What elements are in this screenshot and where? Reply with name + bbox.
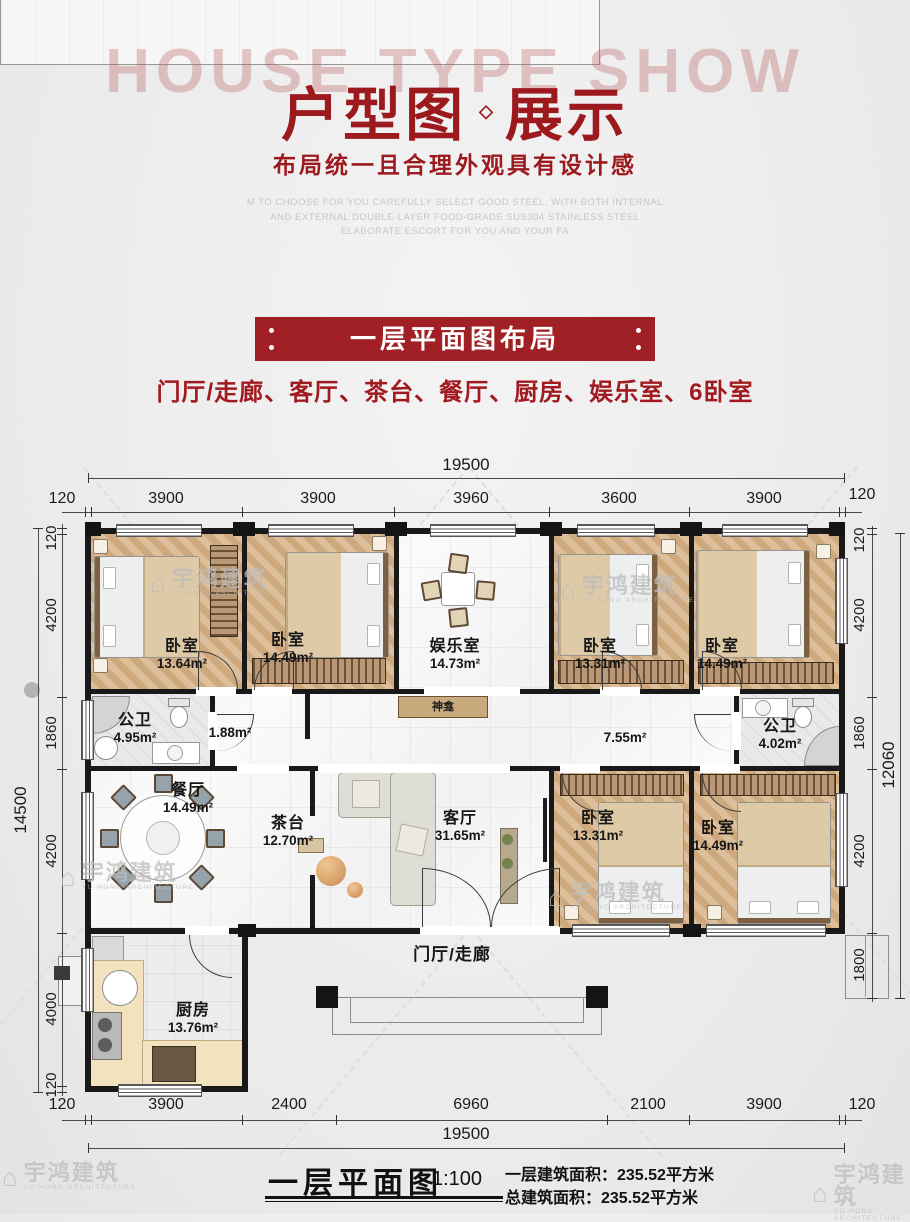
dim-tick — [839, 507, 840, 517]
dim-tick — [91, 507, 92, 517]
dim-tick — [845, 1115, 846, 1125]
game-table-icon — [441, 572, 475, 606]
window — [81, 792, 94, 880]
room-area: 1.88m² — [195, 725, 265, 741]
dim-tick — [844, 1143, 845, 1153]
room-name: 娱乐室 — [400, 638, 510, 656]
nightstand-icon — [816, 544, 831, 559]
room-area: 13.31m² — [550, 656, 650, 672]
plant-icon — [502, 858, 513, 869]
pillow — [367, 563, 380, 585]
room-label: 公卫 4.95m² — [90, 712, 180, 746]
title-part1: 户型图 — [281, 83, 467, 148]
window — [268, 524, 354, 537]
window — [577, 524, 655, 537]
nightstand-icon — [707, 905, 722, 920]
room-name: 公卫 — [735, 718, 825, 736]
dim-label: 1860 — [851, 703, 865, 763]
dim-tick — [867, 998, 877, 999]
dim-tick — [33, 528, 43, 529]
chair-icon — [154, 884, 173, 903]
dim-label: 120 — [22, 1096, 102, 1114]
room-label: 卧室 13.64m² — [132, 638, 232, 672]
room-name: 卧室 — [550, 638, 650, 656]
window — [706, 924, 826, 937]
room-label: 客厅 31.65m² — [405, 810, 515, 844]
desc-line3: ELABORATE ESCORT FOR YOU AND YOUR FA — [0, 225, 910, 240]
dim-label: 120 — [43, 508, 57, 568]
pillow — [367, 625, 380, 647]
wall-pier — [683, 924, 701, 937]
watermark-cn: 宇鸿建筑 — [834, 1164, 910, 1208]
dim-tick — [867, 534, 877, 535]
dim-label: 4200 — [851, 821, 865, 881]
entry-steps — [350, 997, 584, 1023]
dim-label: 4200 — [43, 585, 57, 645]
dim-line — [62, 524, 63, 1096]
dim-label: 19500 — [426, 1124, 506, 1144]
room-name: 客厅 — [405, 810, 515, 828]
footer-area-line2: 总建筑面积：235.52平方米 — [505, 1184, 698, 1208]
room-list-line: 门厅/走廊、客厅、茶台、餐厅、厨房、娱乐室、6卧室 — [0, 372, 910, 407]
dim-tick — [85, 507, 86, 517]
section-banner: 一层平面图布局 — [255, 317, 655, 361]
dim-label: 120 — [43, 1055, 57, 1115]
chair-icon — [100, 829, 119, 848]
watermark: ⌂ 宇鸿建筑YU HONG ARCHITECTURE — [2, 1162, 136, 1191]
dim-tick — [867, 769, 877, 770]
room-area: 14.73m² — [400, 656, 510, 672]
dim-line — [38, 528, 39, 1093]
fridge-icon — [92, 936, 124, 962]
appliance-icon — [152, 1046, 196, 1082]
dim-tick — [895, 998, 905, 999]
area-label: 1.88m² — [195, 725, 265, 741]
wall — [305, 694, 310, 739]
dim-tick — [85, 1115, 86, 1125]
room-name: 餐厅 — [138, 782, 238, 800]
pillow — [797, 901, 819, 914]
watermark-en: YU HONG ARCHITECTURE — [24, 1184, 137, 1191]
room-area: 14.49m² — [668, 838, 768, 854]
burner-icon — [98, 1038, 112, 1052]
banner-dot — [269, 328, 274, 333]
page-title: 户型图◇展示 — [0, 68, 910, 152]
door-gap — [560, 764, 600, 773]
dim-line — [900, 533, 901, 998]
dim-label: 4200 — [43, 821, 57, 881]
footer-area-line1: 一层建筑面积：235.52平方米 — [505, 1161, 714, 1185]
room-label: 门厅/走廊 — [372, 946, 532, 964]
watermark-cn: 宇鸿建筑 — [24, 1162, 137, 1184]
room-label: 卧室 13.31m² — [550, 638, 650, 672]
sink-icon — [755, 700, 771, 716]
dim-tick — [242, 1115, 243, 1125]
desc-line2: AND EXTERNAL DOUBLE-LAYER FOOD-GRADE SUS… — [0, 211, 910, 226]
chair-icon — [475, 580, 496, 601]
section-banner-title: 一层平面图布局 — [255, 317, 655, 361]
door-gap — [237, 764, 289, 773]
dim-label: 3900 — [126, 1096, 206, 1114]
pillow — [788, 624, 801, 646]
watermark-en: YU HONG ARCHITECTURE — [834, 1208, 910, 1222]
dim-label: 14500 — [11, 780, 25, 840]
room-name: 卧室 — [238, 632, 338, 650]
headboard — [383, 553, 388, 657]
headboard — [804, 551, 809, 657]
burner-icon — [98, 1018, 112, 1032]
room-area: 14.49m² — [238, 650, 338, 666]
room-name: 卧室 — [132, 638, 232, 656]
kitchen-sink-icon — [102, 970, 138, 1006]
desc-line1: M TO CHOOSE FOR YOU CAREFULLY SELECT GOO… — [0, 196, 910, 211]
dim-label: 1860 — [43, 703, 57, 763]
chair-icon — [448, 553, 469, 574]
chair-icon — [448, 607, 469, 628]
wall-pier — [680, 522, 702, 536]
room-area: 13.64m² — [132, 656, 232, 672]
dim-label: 19500 — [426, 455, 506, 475]
shrine-box: 神龛 — [398, 696, 488, 718]
room-area: 14.49m² — [672, 656, 772, 672]
dim-line — [88, 478, 844, 479]
dining-table-center — [146, 821, 180, 855]
room-name: 厨房 — [138, 1002, 248, 1020]
pillow — [103, 625, 116, 647]
nightstand-icon — [564, 905, 579, 920]
dim-label: 3900 — [724, 490, 804, 508]
banner-dot — [636, 328, 641, 333]
window — [835, 793, 848, 887]
room-label: 卧室 14.49m² — [668, 820, 768, 854]
wall-pier — [233, 522, 255, 536]
diamond-icon: ◇ — [479, 101, 493, 121]
dim-label: 3900 — [724, 1096, 804, 1114]
banner-dot — [636, 345, 641, 350]
wall — [310, 875, 315, 928]
dim-label: 1800 — [851, 935, 865, 995]
watermark: ⌂ 宇鸿建筑YU HONG ARCHITECTURE — [812, 1164, 910, 1222]
dim-tick — [91, 1115, 92, 1125]
room-name: 卧室 — [672, 638, 772, 656]
pillow — [651, 901, 673, 914]
room-name: 卧室 — [548, 810, 648, 828]
dim-tick — [867, 697, 877, 698]
nightstand-icon — [661, 539, 676, 554]
sofa-cushion — [352, 780, 380, 808]
floorplan-poster: { "colors": {"accent_red":"#9c1a1e","ban… — [0, 0, 910, 1214]
dim-label: 4200 — [851, 585, 865, 645]
dim-tick — [394, 507, 395, 517]
window — [835, 558, 848, 644]
yuhong-logo-icon: ⌂ — [2, 1164, 18, 1190]
wall — [310, 771, 315, 816]
wardrobe-icon — [210, 545, 238, 637]
window — [430, 524, 516, 537]
pillow — [788, 562, 801, 584]
dim-label: 3900 — [126, 490, 206, 508]
nightstand-icon — [93, 539, 108, 554]
dim-label: 12060 — [879, 735, 893, 795]
dim-tick — [689, 507, 690, 517]
wall-pier — [385, 522, 407, 536]
pillow — [103, 567, 116, 589]
footer-underline — [265, 1201, 503, 1202]
dim-tick — [895, 533, 905, 534]
headboard — [738, 918, 830, 923]
entrance-gap — [420, 926, 560, 935]
room-label: 卧室 13.31m² — [548, 810, 648, 844]
room-name: 公卫 — [90, 712, 180, 730]
porch-column — [316, 986, 338, 1008]
room-label: 娱乐室 14.73m² — [400, 638, 510, 672]
opening — [318, 764, 510, 773]
chair-icon — [206, 829, 225, 848]
dim-line — [872, 526, 873, 1002]
porch-column — [586, 986, 608, 1008]
dim-tick — [845, 507, 846, 517]
room-label: 餐厅 14.49m² — [138, 782, 238, 816]
dim-line — [62, 512, 862, 513]
dim-line — [62, 1120, 862, 1121]
dim-tick — [549, 507, 550, 517]
room-label: 卧室 14.49m² — [238, 632, 338, 666]
yuhong-logo-icon: ⌂ — [812, 1180, 828, 1206]
dim-tick — [57, 697, 67, 698]
pillow — [749, 901, 771, 914]
window — [722, 524, 808, 537]
window — [116, 524, 202, 537]
wall-pier — [85, 522, 101, 536]
dim-tick — [607, 1115, 608, 1125]
dim-label: 6960 — [431, 1096, 511, 1114]
window — [81, 948, 94, 1012]
stoop-marker — [54, 966, 70, 980]
window — [572, 924, 670, 937]
room-label: 公卫 4.02m² — [735, 718, 825, 752]
room-name: 茶台 — [238, 815, 338, 833]
pillow — [609, 901, 631, 914]
tea-stool-icon — [347, 882, 363, 898]
wall-pier — [829, 522, 845, 536]
dim-tick — [844, 473, 845, 483]
nightstand-icon — [372, 536, 387, 551]
door-gap — [185, 926, 229, 935]
dim-label: 120 — [22, 490, 102, 508]
wall — [242, 533, 247, 694]
dim-label: 120 — [822, 1096, 902, 1114]
dim-label: 2100 — [608, 1096, 688, 1114]
room-name: 门厅/走廊 — [372, 946, 532, 964]
nightstand-icon — [93, 658, 108, 673]
dim-line — [88, 1148, 844, 1149]
dim-tick — [88, 1143, 89, 1153]
banner-dot — [269, 345, 274, 350]
room-area: 13.76m² — [138, 1020, 248, 1036]
title-part2: 展示 — [505, 83, 629, 148]
room-area: 4.95m² — [90, 730, 180, 746]
dim-label: 4000 — [43, 979, 57, 1039]
room-area: 4.02m² — [735, 736, 825, 752]
dim-label: 3960 — [431, 490, 511, 508]
subtitle: 布局统一且合理外观具有设计感 — [0, 146, 910, 180]
dim-tick — [689, 1115, 690, 1125]
chair-icon — [420, 579, 442, 601]
room-area: 14.49m² — [138, 800, 238, 816]
dim-label: 3900 — [278, 490, 358, 508]
room-area: 12.70m² — [238, 833, 338, 849]
headboard — [95, 557, 100, 657]
tv-icon — [543, 798, 547, 862]
room-area: 7.55m² — [585, 730, 665, 746]
sink-icon — [167, 745, 183, 761]
room-area: 31.65m² — [405, 828, 515, 844]
footer-scale: 1:100 — [432, 1168, 482, 1191]
wall — [394, 533, 399, 694]
headboard — [652, 555, 657, 655]
dim-label: 3600 — [579, 490, 659, 508]
area-label: 7.55m² — [585, 730, 665, 746]
door-gap — [424, 687, 520, 696]
room-label: 卧室 14.49m² — [672, 638, 772, 672]
dim-tick — [242, 507, 243, 517]
dim-tick — [33, 1092, 43, 1093]
dim-tick — [57, 769, 67, 770]
dim-tick — [867, 528, 877, 529]
dim-tick — [57, 933, 67, 934]
room-label: 厨房 13.76m² — [138, 1002, 248, 1036]
wall-pier — [540, 522, 562, 536]
dim-label: 2400 — [249, 1096, 329, 1114]
footer-underline — [265, 1196, 503, 1199]
room-area: 13.31m² — [548, 828, 648, 844]
dim-label: 120 — [851, 510, 865, 570]
room-label: 茶台 12.70m² — [238, 815, 338, 849]
description-en: M TO CHOOSE FOR YOU CAREFULLY SELECT GOO… — [0, 196, 910, 240]
dim-tick — [867, 933, 877, 934]
room-name: 卧室 — [668, 820, 768, 838]
dim-tick — [88, 473, 89, 483]
door-gap — [700, 764, 740, 773]
dim-tick — [336, 1115, 337, 1125]
wall-pier — [238, 924, 256, 937]
dim-label: 120 — [822, 486, 902, 504]
headboard — [599, 918, 683, 923]
dim-tick — [839, 1115, 840, 1125]
pillow — [636, 564, 649, 586]
tea-table-icon — [316, 856, 346, 886]
